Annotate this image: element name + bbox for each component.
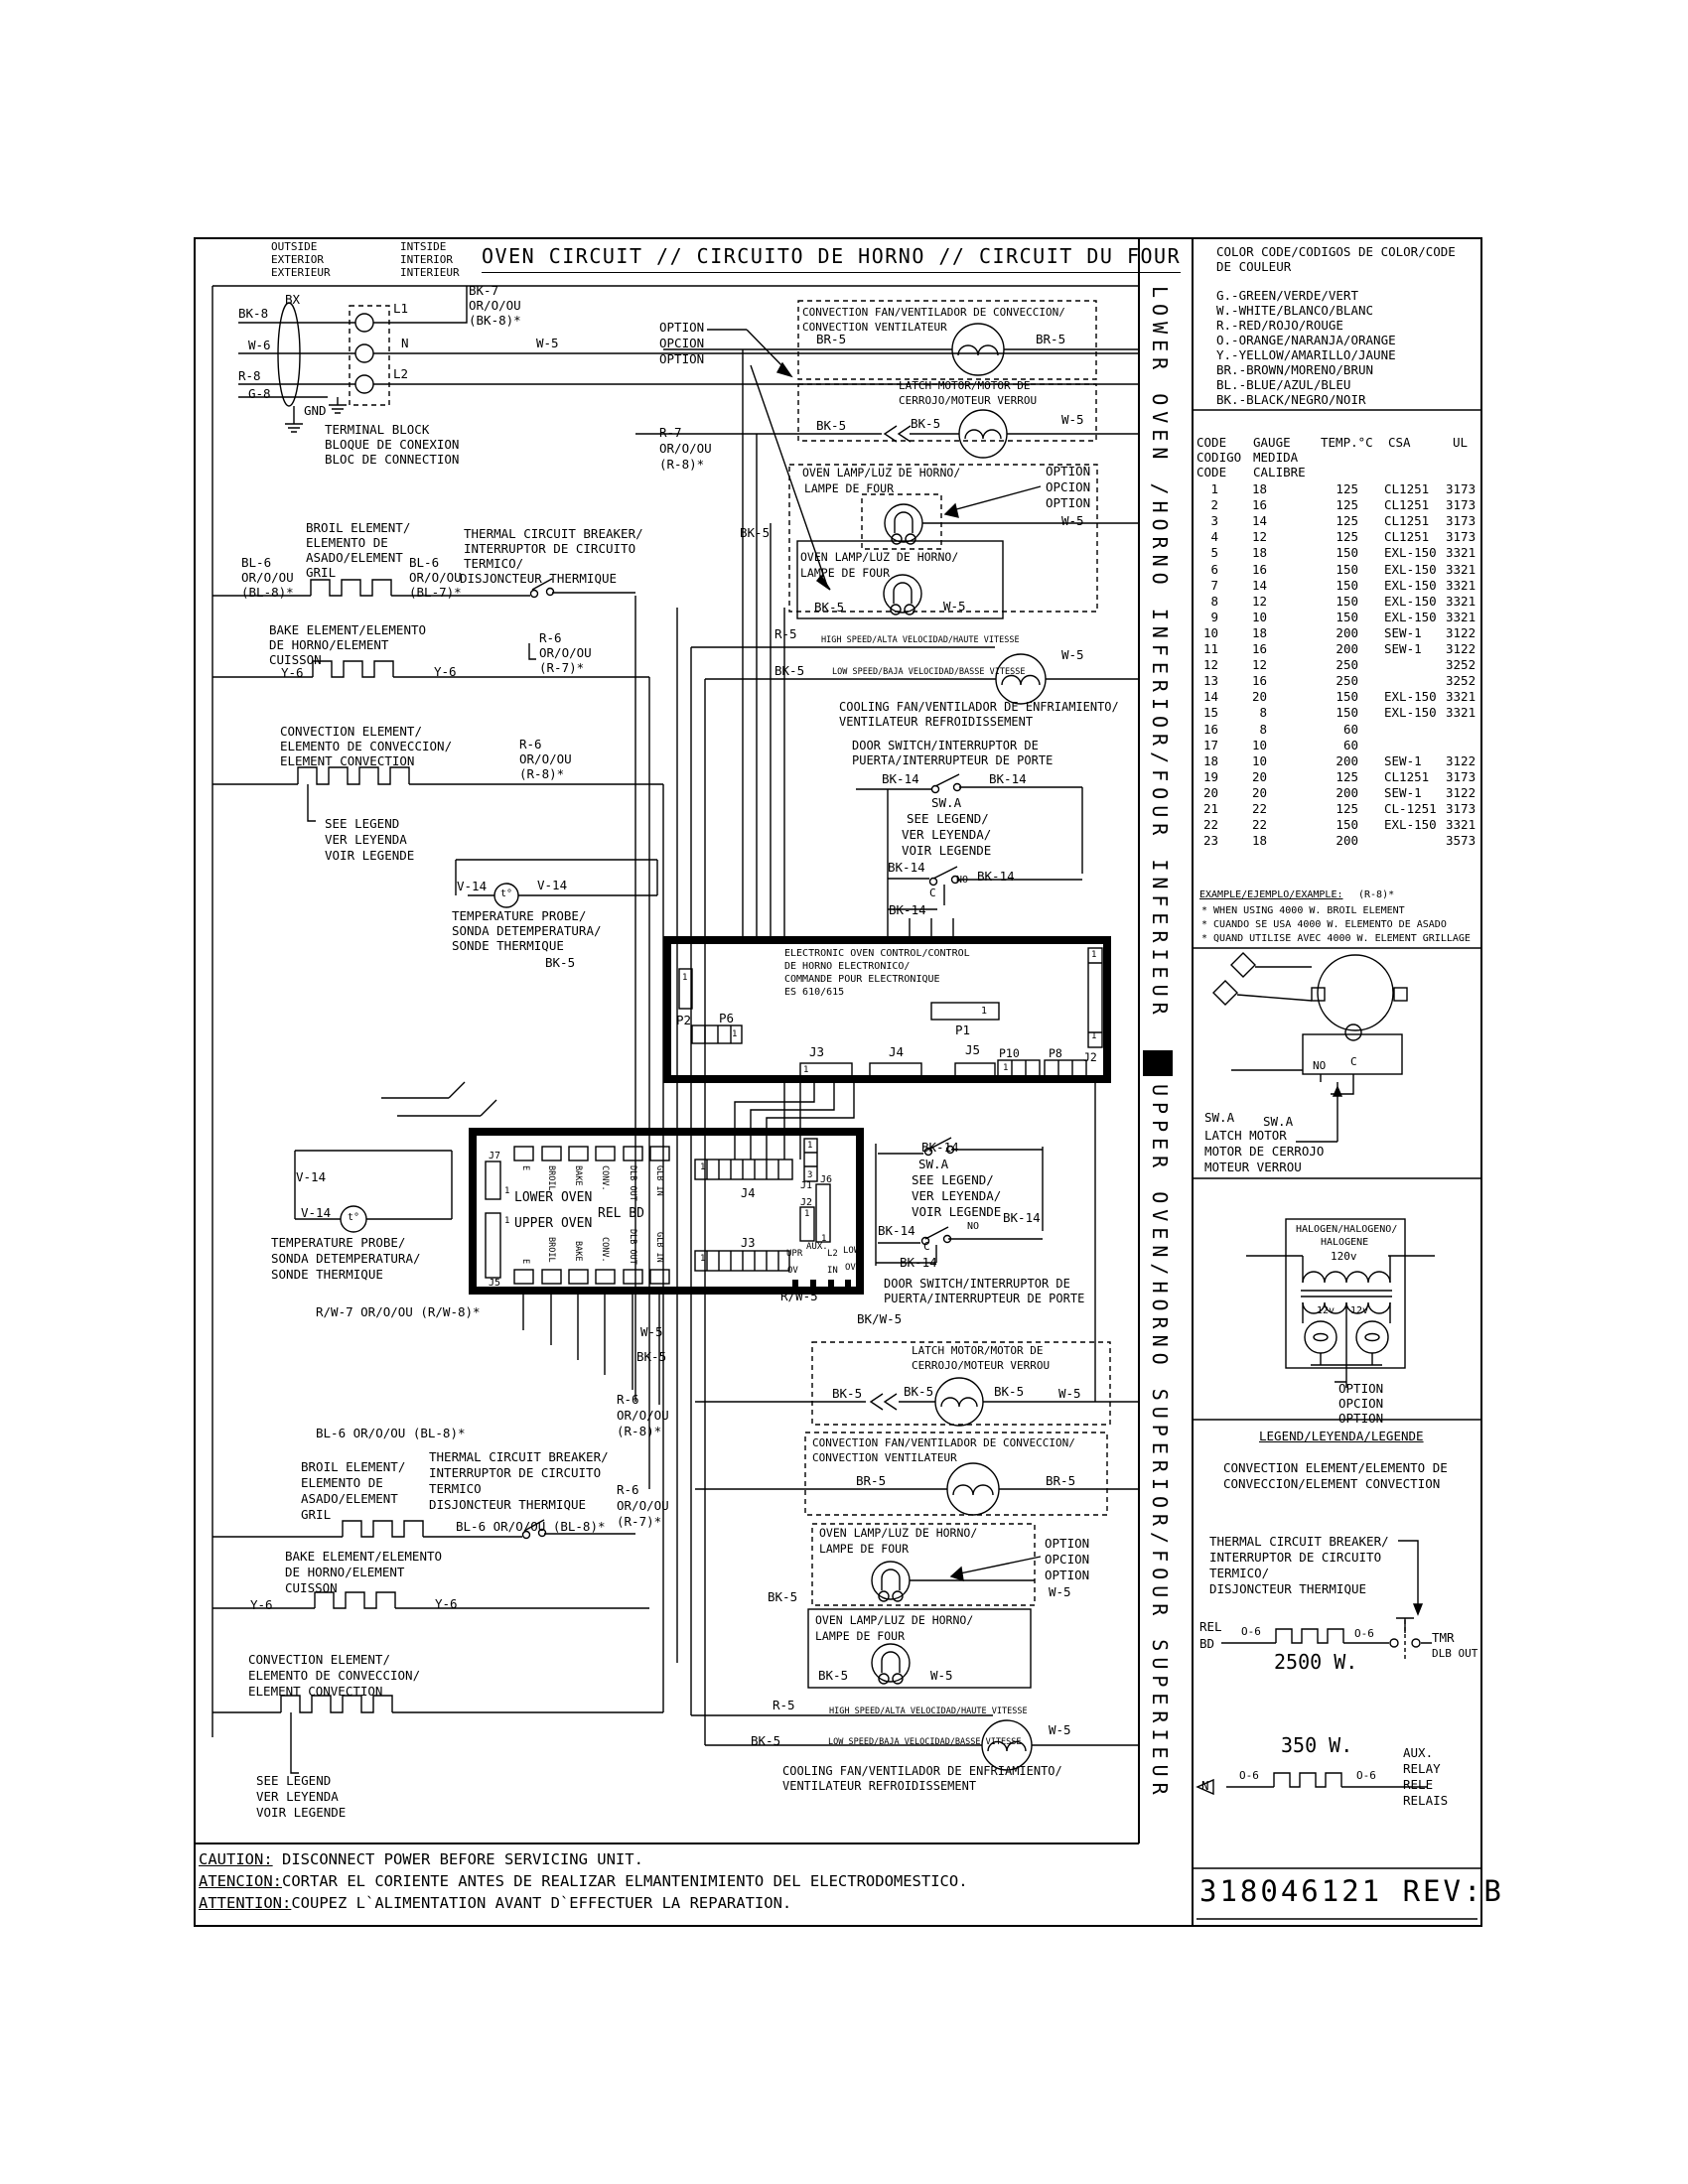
contact-tag: NO: [956, 876, 968, 886]
legend-aux: AUX.: [1403, 1747, 1433, 1760]
wire-table-header: GAUGE: [1253, 437, 1291, 450]
wire-tag: (BL-7)*: [409, 587, 462, 600]
option-tag: OPTION: [1045, 1570, 1089, 1582]
option-tag: OPTION: [1338, 1413, 1383, 1426]
conv-fan-caption: CONVECTION VENTILATEUR: [812, 1452, 957, 1463]
latch-legend-caption: MOTEUR VERROU: [1204, 1161, 1302, 1174]
relbd-caption: REL BD: [598, 1207, 644, 1220]
wire-table-cell: 10: [1195, 627, 1218, 640]
wire-table-cell: 150: [1321, 819, 1358, 832]
caution-prefix: ATTENTION:: [199, 1894, 291, 1912]
wire-table-cell: 7: [1195, 580, 1218, 593]
halogen-caption: HALOGENE: [1321, 1238, 1368, 1248]
wattage: 350 W.: [1281, 1735, 1352, 1755]
oven-lamp-caption: LAMPE DE FOUR: [804, 483, 894, 495]
bake-element-symbol: [212, 1592, 649, 1608]
wire-tag: W-5: [1058, 1388, 1081, 1401]
banner-separator-bar: [1143, 1050, 1173, 1076]
wire-table-cell: 3173: [1446, 483, 1476, 496]
switch-tag: SW.A: [1204, 1112, 1234, 1125]
caution-line: ATTENTION:COUPEZ L`ALIMENTATION AVANT D`…: [199, 1896, 791, 1912]
wire-table-cell: 3173: [1446, 803, 1476, 816]
wire-tag: (R-7)*: [617, 1516, 661, 1529]
switch-tag: SW.A: [931, 797, 961, 810]
option-tag: OPCION: [1338, 1398, 1383, 1411]
connector-tag: J3: [741, 1237, 755, 1249]
wire-tag: BR-5: [856, 1475, 886, 1488]
wire-tag: OR/O/OU: [519, 753, 572, 766]
wire-table-cell: 125: [1321, 771, 1358, 784]
terminal-block-caption-es: BLOQUE DE CONEXION: [325, 439, 459, 452]
wire-tag: Y-6: [434, 666, 457, 679]
diagram-title: OVEN CIRCUIT // CIRCUITO DE HORNO // CIR…: [482, 244, 1181, 273]
probe-caption: SONDA DETEMPERATURA/: [271, 1253, 421, 1266]
wire-tag: OR/O/OU: [409, 572, 462, 585]
connector-tag: J4: [889, 1046, 904, 1059]
terminal-block-caption-fr: BLOC DE CONNECTION: [325, 454, 459, 467]
broil-caption: ELEMENTO DE: [301, 1477, 383, 1490]
oven-lamp-caption: LAMPE DE FOUR: [815, 1631, 905, 1643]
wire-table-cell: CL1251: [1384, 483, 1429, 496]
example-note: * QUAND UTILISE AVEC 4000 W. ELEMENT GRI…: [1201, 934, 1471, 944]
wire-table-cell: 10: [1243, 740, 1267, 752]
conv-caption: CONVECTION ELEMENT/: [248, 1654, 390, 1667]
wire-table-cell: 3321: [1446, 547, 1476, 560]
wire-tag: BK-5: [818, 1670, 848, 1683]
wire-tag: (BL-8)*: [241, 587, 294, 600]
wire-table-cell: 3573: [1446, 835, 1476, 848]
wire-table-cell: 10: [1243, 612, 1267, 624]
wire-table-cell: 4: [1195, 531, 1218, 544]
wire-table-cell: 16: [1243, 499, 1267, 512]
caution-line: ATENCION:CORTAR EL CORIENTE ANTES DE REA…: [199, 1874, 968, 1890]
relbd-out-label: OV: [787, 1267, 798, 1276]
wire-table-cell: 12: [1243, 531, 1267, 544]
wire-table-cell: 20: [1195, 787, 1218, 800]
wire-tag: R-6: [617, 1394, 639, 1407]
door-switch-caption: PUERTA/INTERRUPTEUR DE PORTE: [884, 1293, 1084, 1304]
example-code: (R-8)*: [1358, 890, 1394, 900]
color-code-entry: BR.-BROWN/MORENO/BRUN: [1216, 364, 1373, 377]
wire-table-cell: 18: [1243, 483, 1267, 496]
caution-prefix: CAUTION:: [199, 1850, 273, 1868]
latch-caption: LATCH MOTOR/MOTOR DE: [899, 380, 1030, 391]
terminal-block-caption: TERMINAL BLOCK: [325, 424, 429, 437]
option-tag: OPTION: [659, 322, 704, 335]
wire-tag: W-6: [248, 340, 271, 352]
see-legend: SEE LEGEND/: [912, 1174, 994, 1187]
pin1-marker: 1: [732, 1030, 737, 1039]
legend-relbd: REL: [1199, 1621, 1222, 1634]
wire-table-cell: 250: [1321, 675, 1358, 688]
conv-caption: ELEMENTO DE CONVECCION/: [248, 1670, 420, 1683]
pin1-marker: 1: [807, 1142, 812, 1151]
halogen-caption: HALOGEN/HALOGENO/: [1296, 1225, 1397, 1235]
contact-tag: C: [1350, 1056, 1357, 1067]
switch-tag: SW.A: [918, 1159, 948, 1171]
wire-tag: (R-8)*: [617, 1426, 661, 1438]
banner-upper-oven: UPPER OVEN/HORNO SUPERIOR/FOUR SUPERIEUR: [1148, 1084, 1172, 1801]
option-tag: OPTION: [1338, 1383, 1383, 1396]
probe-caption: TEMPERATURE PROBE/: [452, 910, 586, 923]
wire-table-cell: 12: [1243, 659, 1267, 672]
wire-table-cell: 3321: [1446, 691, 1476, 704]
example-note: * CUANDO SE USA 4000 W. ELEMENTO DE ASAD…: [1201, 920, 1447, 930]
wire-table-cell: SEW-1: [1384, 627, 1422, 640]
terminal-n: N: [401, 338, 409, 350]
wire-table-header: MEDIDA: [1253, 452, 1298, 465]
wire-tag: BK-14: [989, 773, 1027, 786]
wire-table-cell: 200: [1321, 787, 1358, 800]
probe-caption: TEMPERATURE PROBE/: [271, 1237, 405, 1250]
relbd-pin-label: DLB OUT: [628, 1229, 636, 1265]
relbd-pin-label: BROIL: [546, 1237, 555, 1263]
caution-prefix: ATENCION:: [199, 1872, 282, 1890]
wire-table-cell: SEW-1: [1384, 643, 1422, 656]
connector-tag: P1: [955, 1024, 970, 1037]
wire-table-cell: 3122: [1446, 643, 1476, 656]
speed-tag: LOW SPEED/BAJA VELOCIDAD/BASSE VITESSE: [832, 668, 1025, 677]
wire-tag: OR/O/OU: [241, 572, 294, 585]
wire-table-cell: CL1251: [1384, 531, 1429, 544]
wire-table-cell: 12: [1195, 659, 1218, 672]
connector-tag: J7: [489, 1152, 500, 1161]
wire-table-cell: 250: [1321, 659, 1358, 672]
wire-table-cell: 11: [1195, 643, 1218, 656]
wire-table-header: CODE: [1196, 437, 1226, 450]
wire-table-cell: 60: [1321, 740, 1358, 752]
wire-table-cell: 125: [1321, 515, 1358, 528]
bx-tag: BX: [285, 294, 300, 307]
breaker-caption: TERMICO/: [464, 558, 523, 571]
wire-table-cell: 3252: [1446, 675, 1476, 688]
relbd-out-label: AUX.: [806, 1243, 828, 1252]
conv-caption: CONVECTION ELEMENT/: [280, 726, 422, 739]
wire-table-cell: 150: [1321, 707, 1358, 720]
see-legend: VER LEYENDA: [325, 834, 407, 847]
wire-table-header: CODIGO: [1196, 452, 1241, 465]
wire-tag: Y-6: [281, 667, 304, 680]
connector-tag: J1: [800, 1181, 812, 1191]
example-heading: EXAMPLE/EJEMPLO/EXAMPLE:: [1199, 890, 1343, 900]
wire-table-cell: 3321: [1446, 596, 1476, 609]
conv-fan-caption: CONVECTION FAN/VENTILADOR DE CONVECCION/: [812, 1437, 1075, 1448]
legend-breaker: THERMAL CIRCUIT BREAKER/: [1209, 1536, 1389, 1549]
wire-tag: (BK-8)*: [469, 315, 521, 328]
connector-tag: J2: [800, 1198, 812, 1208]
wire-table-cell: EXL-150: [1384, 580, 1437, 593]
wire-table-cell: 20: [1243, 691, 1267, 704]
wire-tag: BK-5: [911, 418, 940, 431]
broil-caption: BROIL ELEMENT/: [306, 522, 410, 535]
pin1-marker: 1: [804, 1210, 809, 1219]
wire-tag: BL-6: [409, 557, 439, 570]
wire-tag: BL-6 OR/O/OU (BL-8)*: [316, 1428, 466, 1440]
wire-tag: BK-14: [882, 773, 919, 786]
bake-caption: DE HORNO/ELEMENT: [285, 1567, 404, 1579]
wire-tag: R-5: [774, 628, 797, 641]
terminal-block-symbol: [212, 286, 1139, 1737]
wire-table-cell: 200: [1321, 835, 1358, 848]
wire-tag: (R-8)*: [659, 459, 704, 472]
relbd-out-label: L2: [827, 1250, 838, 1259]
speed-tag: HIGH SPEED/ALTA VELOCIDAD/HAUTE VITESSE: [821, 636, 1020, 645]
broil-caption: ASADO/ELEMENT: [301, 1493, 398, 1506]
speed-tag: LOW SPEED/BAJA VELOCIDAD/BASSE VITESSE: [828, 1738, 1021, 1747]
color-code-entry: R.-RED/ROJO/ROUGE: [1216, 320, 1343, 333]
wire-table-cell: 150: [1321, 691, 1358, 704]
wire-table-cell: 21: [1195, 803, 1218, 816]
see-legend: VER LEYENDA: [256, 1791, 339, 1804]
voltage-tag: 12v: [1350, 1306, 1368, 1316]
inside-label: INTSIDE: [400, 241, 446, 252]
inside-label-fr: INTERIEUR: [400, 267, 460, 278]
wire-table-cell: 3: [1195, 515, 1218, 528]
wire-table-cell: 3173: [1446, 515, 1476, 528]
wire-tag: BK-5: [740, 527, 770, 540]
wire-table-cell: 3122: [1446, 787, 1476, 800]
pin1-marker: 1: [1091, 951, 1096, 960]
pin-marker: 3: [807, 1171, 812, 1180]
wire-tag: BK-5: [994, 1386, 1024, 1399]
oven-lamp-caption: OVEN LAMP/LUZ DE HORNO/: [800, 552, 958, 564]
wire-table-cell: 14: [1243, 580, 1267, 593]
wire-tag: OR/O/OU: [617, 1500, 669, 1513]
outside-label-fr: EXTERIEUR: [271, 267, 331, 278]
wire-table-cell: 8: [1243, 724, 1267, 737]
relbd-pin-label: BAKE: [573, 1241, 582, 1261]
relbd-pin-label: GLB IN: [654, 1232, 663, 1263]
wire-table-cell: 3321: [1446, 564, 1476, 577]
pin1-marker: 1: [803, 1066, 808, 1075]
relbd-pin-label: E: [520, 1259, 529, 1264]
wire-tag: V-14: [457, 881, 487, 893]
banner-lower-oven: LOWER OVEN /HORNO INFERIOR/FOUR INFERIEU…: [1148, 286, 1172, 1021]
example-note: * WHEN USING 4000 W. BROIL ELEMENT: [1201, 906, 1405, 916]
wire-tag: V-14: [537, 880, 567, 892]
wire-table-cell: 150: [1321, 580, 1358, 593]
legend-aux: RELE: [1403, 1779, 1433, 1792]
pin1-marker: 1: [504, 1217, 509, 1226]
broil-caption: BROIL ELEMENT/: [301, 1461, 405, 1474]
legend-breaker: DISJONCTEUR THERMIQUE: [1209, 1583, 1366, 1596]
wire-table-cell: 5: [1195, 547, 1218, 560]
wire-table-cell: 3173: [1446, 499, 1476, 512]
wire-table-cell: SEW-1: [1384, 755, 1422, 768]
legend-heading: LEGEND/LEYENDA/LEGENDE: [1259, 1431, 1424, 1443]
breaker-caption: INTERRUPTOR DE CIRCUITO: [429, 1467, 601, 1480]
convection-element-symbol: [212, 767, 663, 821]
contact-tag: NO: [967, 1222, 979, 1232]
see-legend: SEE LEGEND: [325, 818, 399, 831]
wire-table-cell: 8: [1195, 596, 1218, 609]
wire-tag: Y-6: [250, 1599, 273, 1612]
bake-caption: CUISSON: [285, 1582, 338, 1595]
legend-relbd: BD: [1199, 1638, 1214, 1651]
pin1-marker: 1: [682, 974, 687, 983]
wire-table-cell: 150: [1321, 547, 1358, 560]
wire-table-cell: 23: [1195, 835, 1218, 848]
see-legend: VOIR LEGENDE: [912, 1206, 1001, 1219]
probe-caption: SONDE THERMIQUE: [452, 940, 564, 953]
wire-table-cell: 3173: [1446, 771, 1476, 784]
wire-table-cell: CL1251: [1384, 515, 1429, 528]
wire-tag: (R-7)*: [539, 662, 584, 675]
latch-motor-pictorial-icon: [1318, 955, 1393, 1030]
option-tag: OPCION: [1045, 1554, 1089, 1567]
contact-tag: C: [929, 887, 936, 898]
wire-tag: BK-14: [900, 1257, 937, 1270]
latch-caption: CERROJO/MOTEUR VERROU: [899, 395, 1037, 406]
wire-tag: OR/O/OU: [659, 443, 712, 456]
wire-tag: R-8: [238, 370, 261, 383]
option-tag: OPTION: [1046, 497, 1090, 510]
see-legend: VER LEYENDA/: [912, 1190, 1001, 1203]
wire-table-cell: 3321: [1446, 707, 1476, 720]
oven-lamp-icon: [872, 1562, 910, 1599]
bake-caption: BAKE ELEMENT/ELEMENTO: [269, 624, 426, 637]
conv-caption: ELEMENT CONVECTION: [280, 755, 414, 768]
terminal-l1: L1: [393, 303, 408, 316]
wire-table-cell: 3321: [1446, 612, 1476, 624]
eoc-caption: ELECTRONIC OVEN CONTROL/CONTROL: [784, 949, 970, 959]
see-legend: SEE LEGEND/: [907, 813, 989, 826]
wire-table-cell: 200: [1321, 643, 1358, 656]
wire-table-cell: EXL-150: [1384, 819, 1437, 832]
legend-breaker: TERMICO/: [1209, 1568, 1269, 1580]
connector-tag: P6: [719, 1013, 734, 1025]
wire-tag: BK-8: [238, 308, 268, 321]
wire-table-cell: 20: [1243, 787, 1267, 800]
wire-table-cell: 3173: [1446, 531, 1476, 544]
wire-table-cell: 150: [1321, 612, 1358, 624]
wire-table-cell: 18: [1243, 835, 1267, 848]
inside-label-es: INTERIOR: [400, 254, 453, 265]
wire-table-cell: 125: [1321, 803, 1358, 816]
connector-tag: J4: [741, 1187, 755, 1199]
outside-label: OUTSIDE: [271, 241, 317, 252]
broil-caption: GRIL: [301, 1509, 331, 1522]
neutral-tag: N: [1201, 1780, 1209, 1793]
broil-caption: GRIL: [306, 567, 336, 580]
probe-symbol-label: t°: [348, 1213, 359, 1223]
broil-caption: ASADO/ELEMENT: [306, 552, 403, 565]
wire-table-cell: 14: [1195, 691, 1218, 704]
connector-tag: P10: [999, 1048, 1020, 1060]
speed-tag: HIGH SPEED/ALTA VELOCIDAD/HAUTE VITESSE: [829, 1707, 1028, 1716]
see-legend: VER LEYENDA/: [902, 829, 991, 842]
wire-table-cell: 3122: [1446, 627, 1476, 640]
wire-tag: BK-14: [977, 871, 1015, 884]
wire-tag: V-14: [296, 1171, 326, 1184]
caution-text: DISCONNECT POWER BEFORE SERVICING UNIT.: [273, 1850, 643, 1868]
wire-table-header: CALIBRE: [1253, 467, 1306, 479]
relbd-pin-label: BAKE: [573, 1165, 582, 1185]
connector-tag: J6: [820, 1175, 832, 1185]
wire-table-header: TEMP.°C: [1321, 437, 1373, 450]
wire-table-cell: EXL-150: [1384, 564, 1437, 577]
wire-table-cell: 3321: [1446, 580, 1476, 593]
latch-legend-caption: MOTOR DE CERROJO: [1204, 1146, 1324, 1159]
option-tag: OPTION: [1045, 1538, 1089, 1551]
relbd-pin-label: BROIL: [546, 1165, 555, 1191]
pin1-marker: 1: [981, 1007, 987, 1017]
relbd-out-label: UPR: [786, 1250, 802, 1259]
cooling-fan-caption: COOLING FAN/VENTILADOR DE ENFRIAMIENTO/: [839, 701, 1119, 713]
cooling-fan-caption: COOLING FAN/VENTILADOR DE ENFRIAMIENTO/: [782, 1765, 1062, 1777]
relbd-pin-label: E: [520, 1165, 529, 1170]
wire-tag: BL-6: [241, 557, 271, 570]
voltage-tag: 120v: [1331, 1251, 1357, 1262]
wire-tag: W-5: [1061, 515, 1084, 528]
wire-table-cell: 1: [1195, 483, 1218, 496]
relbd-out-label: IN: [827, 1267, 838, 1276]
wire-table-cell: 125: [1321, 531, 1358, 544]
wire-table-header: CODE: [1196, 467, 1226, 479]
wire-table-cell: EXL-150: [1384, 547, 1437, 560]
gnd-tag: GND: [304, 405, 327, 418]
wire-tag: OR/O/OU: [617, 1410, 669, 1423]
halogen-lamp-icon: [1356, 1321, 1388, 1353]
eoc-caption: ES 610/615: [784, 988, 844, 998]
cooling-fan-caption: VENTILATEUR REFROIDISSEMENT: [782, 1780, 976, 1792]
terminal-l2: L2: [393, 368, 408, 381]
door-switch-caption: DOOR SWITCH/INTERRUPTOR DE: [852, 740, 1039, 751]
oven-lamp-caption: LAMPE DE FOUR: [819, 1544, 909, 1556]
option-tag: OPTION: [1046, 466, 1090, 478]
conv-fan-caption: CONVECTION FAN/VENTILADOR DE CONVECCION/: [802, 307, 1065, 318]
switch-tag: SW.A: [1263, 1116, 1293, 1129]
color-code-heading: COLOR CODE/CODIGOS DE COLOR/CODE: [1216, 246, 1456, 259]
oven-lamp-icon: [872, 1644, 910, 1682]
wire-table-cell: SEW-1: [1384, 787, 1422, 800]
relbd-out-label: LOW: [843, 1247, 859, 1256]
wire-tag: BK-14: [921, 1142, 959, 1155]
wire-tag: BK-14: [889, 904, 926, 917]
convection-element-symbol: [212, 1696, 663, 1773]
legend-conv: CONVECTION ELEMENT/ELEMENTO DE: [1223, 1462, 1448, 1475]
relbd-pin-label: GLB IN: [654, 1165, 663, 1196]
wire-table-cell: 16: [1243, 564, 1267, 577]
wire-tag: R-6: [519, 739, 542, 751]
wire-table-cell: 2: [1195, 499, 1218, 512]
breaker-caption: INTERRUPTOR DE CIRCUITO: [464, 543, 635, 556]
option-tag: OPTION: [659, 353, 704, 366]
wire-table-cell: 125: [1321, 483, 1358, 496]
wire-table-header: CSA: [1388, 437, 1411, 450]
wire-tag: O-6: [1354, 1628, 1374, 1639]
oven-lamp-icon: [884, 575, 921, 613]
bake-caption: DE HORNO/ELEMENT: [269, 639, 388, 652]
wire-table-cell: 12: [1243, 596, 1267, 609]
latch-legend-caption: LATCH MOTOR: [1204, 1130, 1287, 1143]
wire-tag: W-5: [943, 601, 966, 614]
probe-caption: SONDE THERMIQUE: [271, 1269, 383, 1282]
legend-aux: RELAY: [1403, 1763, 1441, 1776]
halogen-lamp-icon: [1305, 1321, 1336, 1353]
wire-tag: R/W-5: [780, 1291, 818, 1303]
wire-table-cell: CL-1251: [1384, 803, 1437, 816]
wire-tag: BK-7: [469, 285, 498, 298]
wire-tag: R-6: [617, 1484, 639, 1497]
color-code-entry: W.-WHITE/BLANCO/BLANC: [1216, 305, 1373, 318]
see-legend: VOIR LEGENDE: [256, 1807, 346, 1820]
wire-tag: O-6: [1356, 1770, 1376, 1781]
relbd-caption: UPPER OVEN: [514, 1217, 592, 1230]
wire-table-cell: 200: [1321, 755, 1358, 768]
caution-line: CAUTION: DISCONNECT POWER BEFORE SERVICI…: [199, 1852, 643, 1868]
wire-tag: Y-6: [435, 1598, 458, 1611]
